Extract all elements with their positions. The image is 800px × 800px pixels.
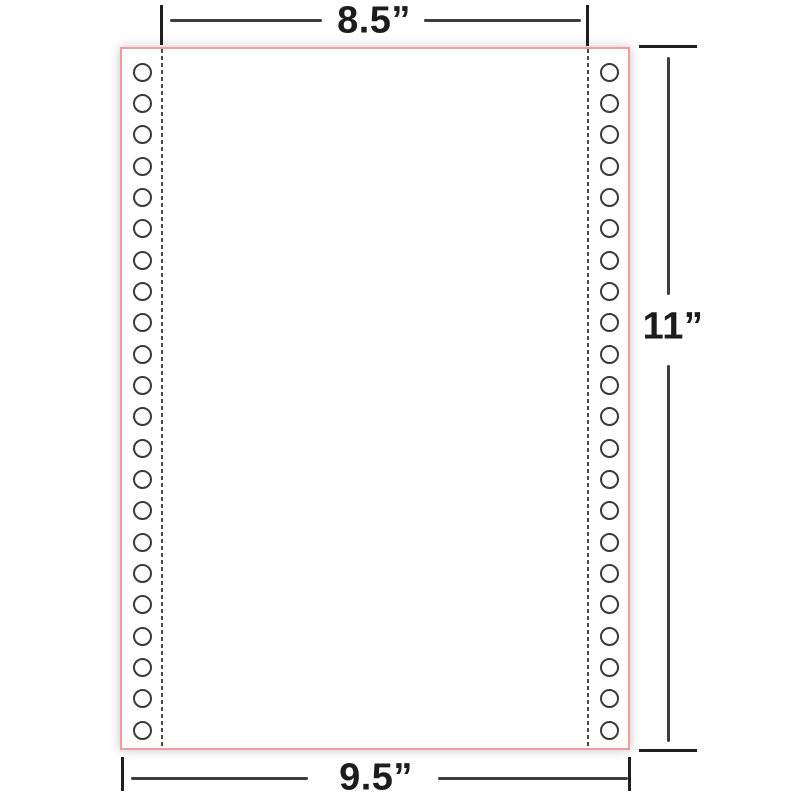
tractor-feed-hole: [600, 188, 619, 207]
dim-top-left-tick: [160, 5, 163, 45]
tractor-feed-hole: [133, 501, 152, 520]
dim-bottom-left-tick: [121, 757, 124, 791]
tractor-feed-hole: [600, 376, 619, 395]
dim-top-line-right-segment: [424, 19, 581, 22]
tractor-feed-hole: [133, 407, 152, 426]
tractor-feed-hole: [133, 219, 152, 238]
tractor-feed-hole: [600, 63, 619, 82]
dimension-label-bottom-width: 9.5”: [339, 757, 413, 800]
tractor-feed-hole: [600, 627, 619, 646]
paper-sheet: [120, 47, 630, 750]
tractor-feed-hole: [133, 470, 152, 489]
tractor-feed-hole: [600, 282, 619, 301]
tractor-feed-hole: [600, 439, 619, 458]
tractor-feed-hole: [133, 689, 152, 708]
tractor-feed-hole: [133, 439, 152, 458]
dim-top-line-left-segment: [170, 19, 322, 22]
tractor-feed-hole: [133, 282, 152, 301]
tractor-feed-hole: [133, 564, 152, 583]
dim-bottom-line-right-segment: [438, 777, 628, 780]
tractor-feed-hole: [600, 345, 619, 364]
tractor-feed-hole: [133, 658, 152, 677]
dimension-label-sheet-height: 11”: [643, 306, 704, 349]
tractor-feed-hole: [133, 157, 152, 176]
tractor-feed-hole: [600, 157, 619, 176]
tractor-feed-hole: [600, 721, 619, 740]
tractor-feed-hole: [133, 313, 152, 332]
tractor-feed-hole: [133, 533, 152, 552]
dim-right-line-top-segment: [667, 57, 670, 295]
tractor-feed-hole: [133, 345, 152, 364]
tractor-feed-hole: [600, 251, 619, 270]
tractor-feed-hole: [600, 407, 619, 426]
tractor-feed-hole: [600, 313, 619, 332]
tractor-feed-hole: [133, 595, 152, 614]
dim-bottom-line-left-segment: [131, 777, 308, 780]
tractor-feed-hole: [133, 251, 152, 270]
tractor-feed-hole: [133, 721, 152, 740]
dim-bottom-right-tick: [628, 757, 631, 791]
tractor-feed-hole: [133, 627, 152, 646]
tractor-feed-hole: [133, 63, 152, 82]
tractor-feed-hole: [600, 125, 619, 144]
tractor-feed-hole: [133, 376, 152, 395]
tractor-feed-hole: [600, 564, 619, 583]
dim-right-bottom-tick: [639, 749, 697, 752]
tractor-feed-hole: [600, 595, 619, 614]
perforation-line-left: [161, 49, 163, 748]
tractor-feed-hole: [133, 94, 152, 113]
tractor-feed-hole: [600, 219, 619, 238]
dim-top-right-tick: [586, 5, 589, 46]
tractor-feed-hole: [600, 533, 619, 552]
diagram-canvas: 8.5” 9.5” 11”: [0, 0, 800, 800]
dimension-label-top-width: 8.5”: [337, 0, 411, 43]
tractor-feed-hole: [600, 658, 619, 677]
tractor-feed-hole: [600, 94, 619, 113]
dim-right-line-bottom-segment: [667, 365, 670, 742]
perforation-line-right: [587, 49, 589, 748]
dim-right-top-tick: [639, 45, 697, 48]
tractor-feed-hole: [133, 188, 152, 207]
tractor-feed-hole: [600, 470, 619, 489]
tractor-feed-hole: [133, 125, 152, 144]
tractor-feed-hole: [600, 689, 619, 708]
tractor-feed-hole: [600, 501, 619, 520]
